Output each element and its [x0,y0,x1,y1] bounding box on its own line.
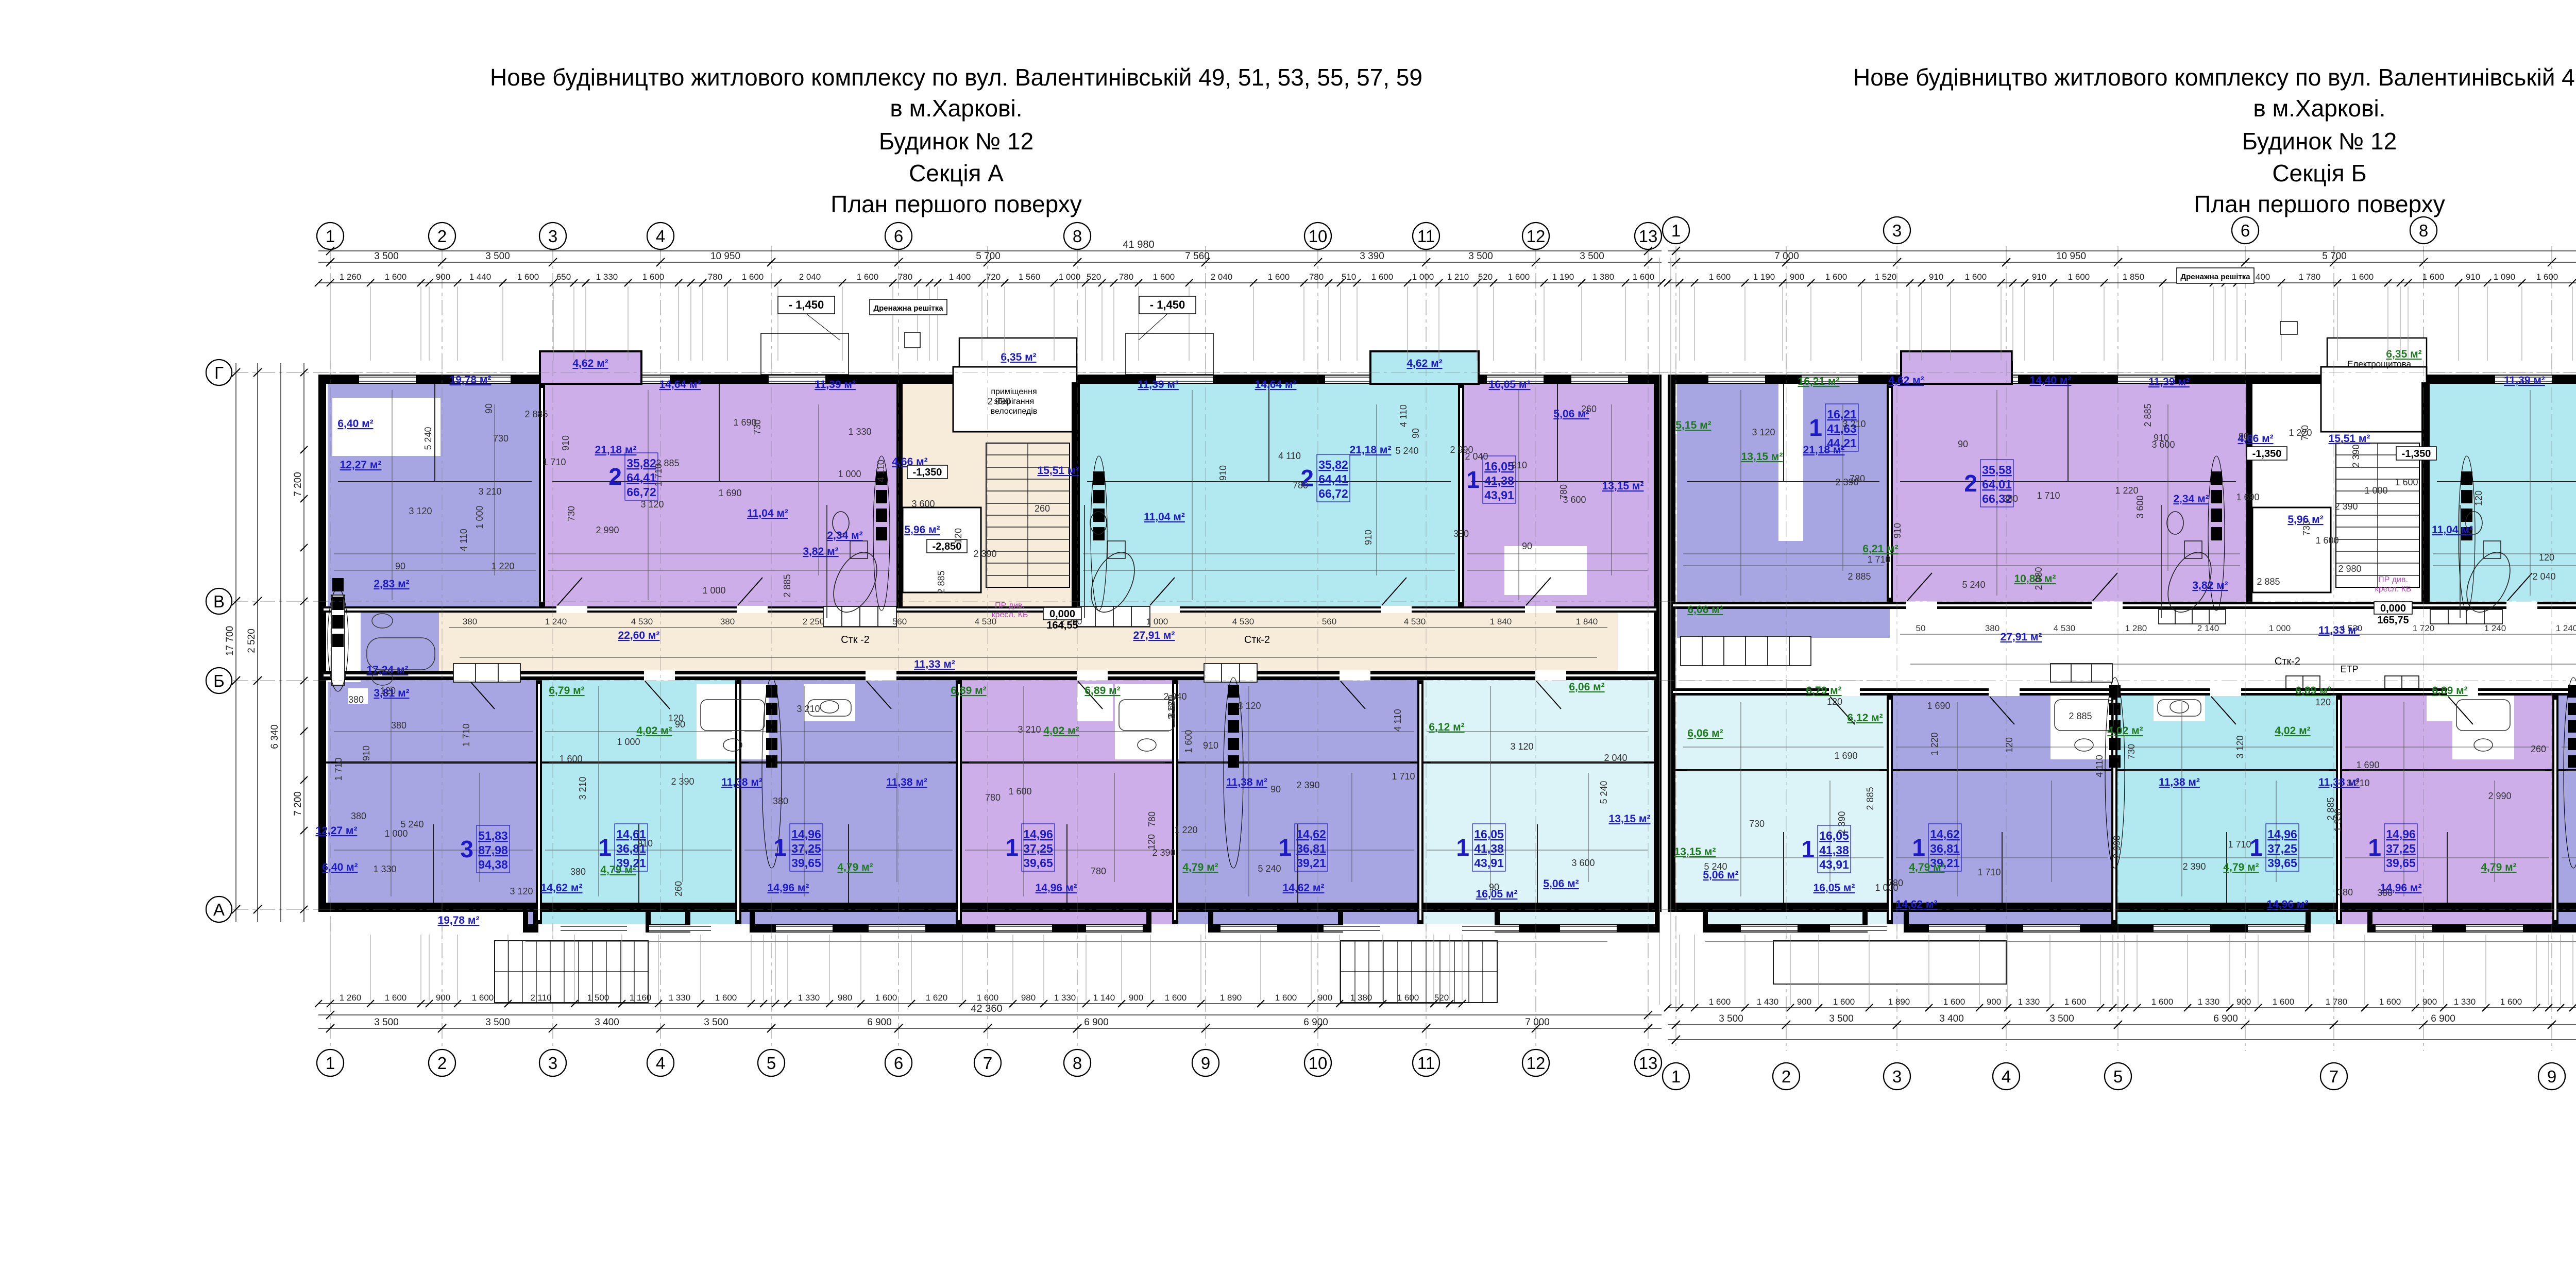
svg-text:6,06 м²: 6,06 м² [1687,727,1723,739]
svg-text:4,79 м²: 4,79 м² [837,861,873,873]
svg-text:1 890: 1 890 [1888,997,1910,1007]
svg-text:1 600: 1 600 [2064,997,2087,1007]
svg-text:3 600: 3 600 [1166,694,1177,718]
svg-text:2 390: 2 390 [2351,444,2361,467]
svg-text:12: 12 [1527,1054,1546,1073]
svg-text:2 885: 2 885 [524,409,548,419]
svg-text:3 500: 3 500 [374,251,399,262]
svg-text:164,55: 164,55 [1046,620,1078,631]
svg-text:1 710: 1 710 [2037,490,2060,501]
svg-text:-1,350: -1,350 [2252,448,2282,460]
svg-text:1 000: 1 000 [838,469,861,479]
svg-text:50: 50 [1916,623,1926,633]
svg-text:5 240: 5 240 [423,427,433,450]
svg-text:1 000: 1 000 [1412,272,1434,282]
svg-text:4 530: 4 530 [2054,623,2076,633]
svg-text:5: 5 [2113,1067,2123,1086]
svg-text:1 600: 1 600 [1397,993,1419,1003]
svg-text:36,81: 36,81 [1296,842,1326,855]
svg-text:2 040: 2 040 [2532,571,2555,582]
svg-text:1 000: 1 000 [1875,883,1898,893]
svg-text:1 600: 1 600 [1268,272,1290,282]
svg-text:6,40 м²: 6,40 м² [337,418,373,430]
svg-text:730: 730 [1749,819,1765,829]
svg-text:910: 910 [2032,272,2046,282]
svg-text:1 600: 1 600 [1183,730,1194,753]
svg-text:14,96 м²: 14,96 м² [1036,882,1077,894]
svg-text:4 110: 4 110 [1278,451,1301,461]
svg-text:780: 780 [1147,811,1157,827]
svg-text:4,02 м²: 4,02 м² [636,725,672,737]
svg-text:1 330: 1 330 [2333,808,2343,832]
svg-text:510: 510 [1342,272,1356,282]
svg-text:11,38 м²: 11,38 м² [1226,776,1267,788]
svg-text:6,79 м²: 6,79 м² [1806,685,1841,697]
svg-text:6 900: 6 900 [1084,1017,1109,1028]
svg-text:Секція Б: Секція Б [2272,160,2366,187]
svg-text:Б: Б [213,671,225,690]
svg-text:2 885: 2 885 [1865,787,1875,810]
svg-text:4,79 м²: 4,79 м² [1909,861,1944,873]
svg-text:1: 1 [1912,834,1925,861]
svg-text:2,83 м²: 2,83 м² [374,578,409,590]
svg-text:1 710: 1 710 [1392,771,1415,782]
svg-text:6,89 м²: 6,89 м² [2295,685,2331,697]
svg-text:260: 260 [1581,404,1597,414]
svg-text:2 885: 2 885 [1848,571,1871,582]
svg-text:14,96: 14,96 [791,827,821,841]
svg-text:1 600: 1 600 [2500,997,2522,1007]
svg-text:4,79 м²: 4,79 м² [2223,861,2259,873]
svg-text:14,62: 14,62 [1930,827,1960,841]
svg-text:51,83: 51,83 [478,829,508,842]
svg-text:2 990: 2 990 [596,525,619,535]
svg-text:8: 8 [1073,1054,1082,1073]
svg-text:1: 1 [1671,221,1681,240]
svg-text:2 250: 2 250 [803,617,825,626]
svg-text:7 200: 7 200 [293,791,303,816]
svg-text:780: 780 [1119,272,1133,282]
svg-text:1 400: 1 400 [949,272,971,282]
svg-text:3 400: 3 400 [1939,1013,1964,1024]
svg-text:1 330: 1 330 [848,427,871,437]
svg-text:12: 12 [1527,227,1546,246]
svg-text:90: 90 [1958,439,1968,449]
svg-text:910: 910 [1892,523,1903,538]
svg-text:2 885: 2 885 [656,458,679,468]
svg-text:260: 260 [2531,744,2546,754]
svg-text:1 190: 1 190 [1753,272,1775,282]
svg-text:35,82: 35,82 [1318,458,1348,471]
svg-text:2: 2 [1782,1067,1791,1086]
svg-text:3 210: 3 210 [1018,724,1041,735]
svg-text:3 600: 3 600 [2135,495,2145,518]
svg-text:2 140: 2 140 [2197,623,2219,633]
svg-text:1 600: 1 600 [2536,272,2558,282]
svg-text:6,06 м²: 6,06 м² [1687,604,1723,616]
svg-text:7 560: 7 560 [1185,251,1210,262]
svg-text:39,21: 39,21 [1296,856,1326,870]
svg-text:13: 13 [1639,1054,1658,1073]
svg-text:0,000: 0,000 [2380,603,2406,614]
svg-text:90: 90 [2239,431,2249,442]
svg-text:780: 780 [1091,866,1106,876]
svg-text:10 950: 10 950 [2056,251,2086,262]
svg-text:1 600: 1 600 [1508,272,1530,282]
svg-text:Нове будівництво житлового ком: Нове будівництво житлового комплексу по … [1853,64,2576,91]
svg-text:3 600: 3 600 [1563,495,1586,505]
svg-text:11: 11 [1417,1054,1435,1073]
svg-text:64,01: 64,01 [1982,478,2012,491]
svg-text:37,25: 37,25 [1023,842,1053,855]
svg-text:2 040: 2 040 [1211,272,1233,282]
svg-text:1 690: 1 690 [1834,751,1857,761]
svg-text:5 240: 5 240 [1962,580,1985,590]
svg-text:1: 1 [2249,834,2263,861]
svg-text:120: 120 [2315,697,2331,707]
svg-text:3 210: 3 210 [1842,419,1866,429]
svg-text:4 110: 4 110 [2094,755,2105,777]
svg-text:Стк-2: Стк-2 [1244,634,1270,646]
svg-text:14,96: 14,96 [1023,827,1053,841]
svg-text:2,34 м²: 2,34 м² [2173,493,2209,505]
svg-text:560: 560 [1322,617,1336,626]
svg-text:520: 520 [1434,993,1449,1003]
svg-text:2 520: 2 520 [246,629,257,653]
svg-text:1 890: 1 890 [1220,993,1242,1003]
svg-text:94,38: 94,38 [478,858,508,871]
svg-text:14,96 м²: 14,96 м² [768,882,809,894]
svg-text:780: 780 [985,792,1001,803]
svg-text:13,15 м²: 13,15 м² [1674,846,1716,858]
svg-text:2 390: 2 390 [1296,780,1319,790]
svg-text:1 600: 1 600 [1165,993,1187,1003]
svg-text:1 000: 1 000 [2364,485,2387,496]
svg-text:1 220: 1 220 [1174,825,1197,835]
svg-text:11,33 м²: 11,33 м² [914,658,955,670]
svg-text:3: 3 [1892,221,1902,240]
svg-text:6,35 м²: 6,35 м² [1001,351,1036,363]
svg-text:380: 380 [463,617,477,626]
svg-text:520: 520 [1478,272,1493,282]
svg-text:900: 900 [1797,997,1811,1007]
svg-text:380: 380 [391,720,406,731]
svg-text:10: 10 [1309,227,1328,246]
svg-text:1 330: 1 330 [596,272,618,282]
svg-text:1 520: 1 520 [1875,272,1897,282]
svg-text:120: 120 [1827,697,1842,707]
svg-text:2 990: 2 990 [987,396,1010,406]
svg-text:кресл. КБ: кресл. КБ [992,611,1028,619]
svg-text:1: 1 [2368,834,2381,861]
svg-text:1 560: 1 560 [1019,272,1041,282]
svg-text:Нове будівництво житлового ком: Нове будівництво житлового комплексу по … [490,64,1422,91]
svg-text:6,06 м²: 6,06 м² [1569,681,1604,693]
svg-text:1 600: 1 600 [875,993,897,1003]
svg-text:11,39 м²: 11,39 м² [1138,379,1179,391]
svg-text:900: 900 [436,272,450,282]
svg-text:910: 910 [2466,272,2480,282]
svg-text:41,38: 41,38 [1484,474,1514,487]
svg-text:1 220: 1 220 [2115,485,2138,496]
svg-text:Дренажна решітка: Дренажна решітка [873,304,943,313]
svg-text:2 040: 2 040 [1604,753,1627,763]
svg-text:720: 720 [986,272,1001,282]
svg-text:1 190: 1 190 [1552,272,1574,282]
svg-text:650: 650 [556,272,571,282]
svg-text:5,96 м²: 5,96 м² [904,524,940,536]
svg-text:90: 90 [1411,428,1421,438]
svg-text:14,64 м²: 14,64 м² [1255,379,1297,391]
svg-text:1 600: 1 600 [559,754,582,764]
svg-text:2 390: 2 390 [671,776,694,787]
svg-text:1 440: 1 440 [469,272,492,282]
svg-text:6,79 м²: 6,79 м² [549,685,584,697]
svg-text:3 120: 3 120 [1510,741,1533,752]
svg-text:1 600: 1 600 [1633,272,1655,282]
svg-text:3 600: 3 600 [1571,858,1595,868]
svg-text:730: 730 [493,433,509,444]
svg-text:6,89 м²: 6,89 м² [2432,685,2467,697]
svg-text:3 120: 3 120 [409,506,432,516]
svg-text:43,91: 43,91 [1484,488,1514,502]
svg-text:14,96 м²: 14,96 м² [2267,899,2309,910]
svg-text:1: 1 [1005,834,1019,861]
svg-text:1 600: 1 600 [1825,272,1848,282]
svg-text:14,62 м²: 14,62 м² [1896,899,1938,910]
svg-text:16,05 м²: 16,05 м² [1489,379,1531,391]
svg-text:1 600: 1 600 [1709,272,1731,282]
svg-text:1 330: 1 330 [669,993,691,1003]
svg-text:165,75: 165,75 [2377,615,2409,626]
svg-text:27,91 м²: 27,91 м² [1133,630,1175,641]
svg-text:7 200: 7 200 [293,472,303,497]
svg-text:4 530: 4 530 [1232,617,1255,626]
svg-text:ЕТР: ЕТР [2340,664,2358,674]
svg-text:Стк-2: Стк-2 [2275,656,2300,667]
svg-text:1 600: 1 600 [1709,997,1731,1007]
svg-text:13,15 м²: 13,15 м² [1609,813,1651,825]
svg-text:90: 90 [1522,541,1532,551]
svg-text:6 900: 6 900 [2431,1013,2455,1024]
svg-text:План першого поверху: План першого поверху [2194,191,2445,217]
svg-text:5: 5 [767,1054,776,1073]
svg-text:6: 6 [894,227,903,246]
svg-text:90: 90 [675,719,685,730]
svg-text:120: 120 [2539,552,2554,563]
svg-text:4 530: 4 530 [1404,617,1426,626]
svg-text:2 990: 2 990 [2112,835,2122,858]
svg-text:1 000: 1 000 [384,828,408,839]
svg-text:1 600: 1 600 [472,993,494,1003]
svg-text:3,82 м²: 3,82 м² [2192,580,2228,591]
svg-text:8: 8 [1073,227,1082,246]
svg-text:2 885: 2 885 [2069,711,2092,721]
svg-text:1 710: 1 710 [543,457,566,467]
svg-text:780: 780 [1850,473,1865,484]
svg-text:780: 780 [1309,272,1324,282]
svg-text:А: А [213,900,225,919]
svg-text:в м.Харкові.: в м.Харкові. [2253,95,2385,122]
svg-text:4 110: 4 110 [459,529,469,551]
svg-text:2 885: 2 885 [936,570,946,594]
svg-text:380: 380 [351,811,366,821]
svg-text:980: 980 [1021,993,1036,1003]
svg-text:16,05 м²: 16,05 м² [1814,882,1855,894]
svg-text:В: В [213,592,225,611]
svg-text:11: 11 [1417,227,1435,246]
svg-text:13: 13 [1639,227,1658,246]
svg-text:11,33 м²: 11,33 м² [2318,624,2360,636]
svg-text:7: 7 [983,1054,992,1073]
svg-text:1 600: 1 600 [2352,272,2374,282]
svg-text:1 000: 1 000 [474,505,485,529]
svg-text:980: 980 [838,993,852,1003]
svg-text:приміщення: приміщення [991,387,1037,396]
svg-text:11,38 м²: 11,38 м² [721,776,762,788]
svg-text:9: 9 [2547,1067,2556,1086]
svg-text:2,34 м²: 2,34 м² [827,530,862,541]
svg-text:560: 560 [892,617,907,626]
svg-text:6,21 м²: 6,21 м² [1862,543,1898,555]
svg-text:37,25: 37,25 [791,842,821,855]
svg-text:1 380: 1 380 [1350,993,1372,1003]
svg-text:1 000: 1 000 [2269,623,2291,633]
svg-text:35,58: 35,58 [1982,463,2012,477]
svg-text:1 000: 1 000 [702,585,725,596]
svg-text:1 600: 1 600 [517,272,539,282]
svg-text:1 600: 1 600 [1965,272,1987,282]
svg-text:16,21 м²: 16,21 м² [1798,376,1840,387]
svg-text:260: 260 [673,881,684,896]
svg-text:7: 7 [2329,1067,2338,1086]
svg-text:14,40 м²: 14,40 м² [2030,375,2072,386]
svg-text:1 600: 1 600 [1153,272,1175,282]
svg-text:66,72: 66,72 [626,485,656,499]
svg-text:1 240: 1 240 [545,617,567,626]
svg-text:380: 380 [720,617,735,626]
svg-text:2: 2 [437,1054,447,1073]
svg-text:14,62: 14,62 [1296,827,1326,841]
svg-text:380: 380 [570,867,586,877]
svg-text:16,05: 16,05 [1474,827,1504,841]
svg-text:4,79 м²: 4,79 м² [1182,861,1218,873]
svg-text:11,04 м²: 11,04 м² [2432,524,2473,536]
svg-text:Дренажна решітка: Дренажна решітка [2180,273,2250,281]
svg-text:1: 1 [1809,414,1822,441]
svg-text:3: 3 [1892,1067,1902,1086]
svg-text:5 240: 5 240 [1258,863,1281,874]
svg-text:730: 730 [2301,520,2312,536]
svg-text:2: 2 [1964,470,1977,497]
svg-text:900: 900 [2236,997,2251,1007]
svg-text:11,39 м²: 11,39 м² [2148,376,2190,388]
svg-text:1 600: 1 600 [2315,535,2338,546]
svg-text:3 500: 3 500 [1580,251,1604,262]
svg-text:43,91: 43,91 [1819,858,1849,871]
svg-text:900: 900 [2422,997,2437,1007]
svg-text:2 040: 2 040 [799,272,821,282]
svg-text:4,62 м²: 4,62 м² [1888,375,1924,386]
svg-text:6: 6 [2241,221,2250,240]
svg-text:87,98: 87,98 [478,843,508,857]
svg-text:2 885: 2 885 [2257,577,2280,587]
svg-text:3 120: 3 120 [510,886,533,896]
svg-text:66,72: 66,72 [1318,487,1348,500]
svg-text:90: 90 [1489,882,1499,892]
svg-text:8: 8 [2419,221,2428,240]
svg-text:Секція А: Секція А [909,160,1004,187]
svg-text:19,78 м²: 19,78 м² [438,914,480,926]
svg-text:1: 1 [326,1054,335,1073]
svg-text:2 885: 2 885 [782,574,792,597]
svg-text:14,96: 14,96 [2386,827,2416,841]
svg-text:1: 1 [1801,836,1815,862]
svg-text:3 500: 3 500 [704,1017,728,1028]
svg-text:1 600: 1 600 [2273,997,2295,1007]
svg-text:Стк -2: Стк -2 [841,634,870,646]
svg-text:1 690: 1 690 [2236,492,2259,502]
svg-text:1 330: 1 330 [2198,997,2220,1007]
svg-text:21,18 м²: 21,18 м² [1803,444,1845,456]
svg-text:велосипедів: велосипедів [991,407,1038,416]
svg-text:1 330: 1 330 [2018,997,2040,1007]
svg-text:120: 120 [2473,490,2484,506]
svg-text:1 220: 1 220 [491,561,514,571]
svg-text:6 900: 6 900 [867,1017,892,1028]
svg-text:900: 900 [1987,997,2001,1007]
svg-text:1 330: 1 330 [2454,997,2476,1007]
svg-text:0,000: 0,000 [1049,608,1075,620]
svg-text:10: 10 [1309,1054,1328,1073]
svg-text:6 900: 6 900 [2213,1013,2238,1024]
svg-text:21,18 м²: 21,18 м² [595,444,637,456]
svg-text:5 240: 5 240 [1599,781,1609,804]
svg-text:36,81: 36,81 [1930,842,1960,855]
svg-text:64,41: 64,41 [1318,472,1348,486]
svg-text:3 120: 3 120 [1238,701,1261,711]
svg-text:900: 900 [1129,993,1143,1003]
svg-text:4 110: 4 110 [876,460,886,482]
svg-text:Будинок № 12: Будинок № 12 [879,128,1033,155]
svg-text:3 210: 3 210 [578,776,588,800]
svg-text:5 700: 5 700 [976,251,1001,262]
svg-text:2 990: 2 990 [2488,791,2511,801]
svg-text:6 900: 6 900 [1303,1017,1328,1028]
svg-text:4,62 м²: 4,62 м² [1406,358,1442,369]
svg-text:90: 90 [484,403,494,414]
svg-text:Будинок № 12: Будинок № 12 [2242,128,2397,155]
svg-text:2: 2 [608,463,622,490]
svg-text:7 000: 7 000 [1774,251,1799,262]
svg-text:1 600: 1 600 [385,993,407,1003]
svg-text:1: 1 [598,834,612,861]
svg-text:6,89 м²: 6,89 м² [1084,685,1120,697]
svg-text:21,18 м²: 21,18 м² [1350,444,1392,456]
svg-text:1: 1 [1278,834,1292,861]
svg-text:3 500: 3 500 [485,1017,510,1028]
svg-text:1 600: 1 600 [1833,997,1855,1007]
svg-text:1 240: 1 240 [2484,623,2506,633]
svg-text:1 840: 1 840 [1576,617,1598,626]
svg-text:2 980: 2 980 [2033,567,2044,590]
svg-text:1 140: 1 140 [1093,993,1115,1003]
svg-text:910: 910 [361,745,371,761]
svg-text:42 360: 42 360 [971,1003,1002,1014]
svg-text:64,41: 64,41 [626,471,656,484]
svg-text:1 600: 1 600 [715,993,737,1003]
svg-text:1 600: 1 600 [1943,997,1965,1007]
